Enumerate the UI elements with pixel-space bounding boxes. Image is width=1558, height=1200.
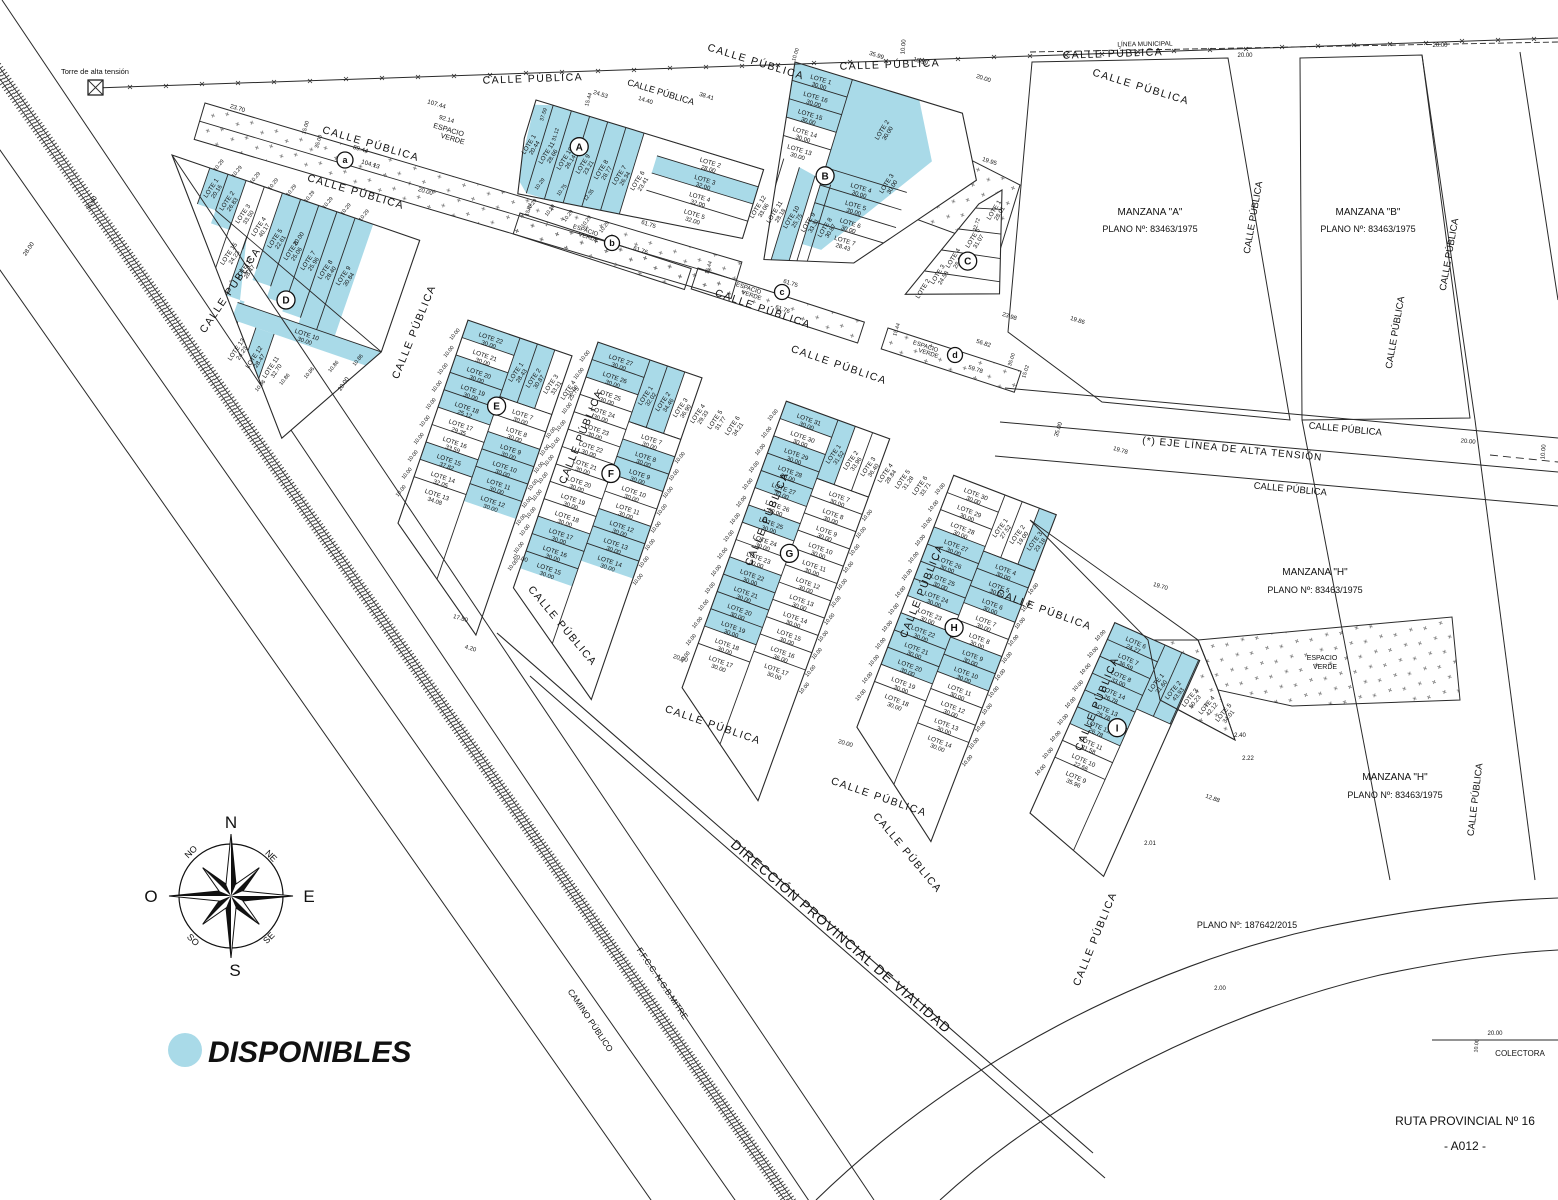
svg-text:N: N [225, 813, 237, 832]
svg-text:PLANO Nº: 187642/2015: PLANO Nº: 187642/2015 [1197, 920, 1297, 930]
svg-text:PLANO Nº: 83463/1975: PLANO Nº: 83463/1975 [1347, 790, 1442, 800]
svg-text:I: I [1116, 723, 1119, 734]
svg-text:d: d [952, 350, 958, 360]
svg-text:E: E [493, 402, 500, 413]
svg-text:2.00: 2.00 [1214, 986, 1226, 992]
svg-text:2.01: 2.01 [1144, 841, 1156, 847]
svg-text:- A012 -: - A012 - [1444, 1139, 1486, 1153]
svg-text:C: C [964, 257, 971, 268]
svg-text:G: G [786, 549, 794, 560]
svg-text:b: b [609, 238, 615, 248]
svg-text:ESPACIO: ESPACIO [1307, 655, 1338, 662]
svg-text:20.00: 20.00 [1432, 43, 1448, 49]
svg-text:D: D [282, 296, 289, 307]
svg-text:10.00: 10.00 [1473, 1039, 1480, 1053]
svg-text:H: H [950, 623, 957, 634]
svg-text:O: O [144, 887, 157, 906]
svg-text:Torre de alta tensión: Torre de alta tensión [61, 67, 129, 76]
svg-text:2.40: 2.40 [1234, 733, 1246, 739]
svg-text:PLANO Nº: 83463/1975: PLANO Nº: 83463/1975 [1102, 224, 1197, 234]
svg-text:c: c [779, 287, 784, 297]
svg-text:20.00: 20.00 [1487, 1031, 1503, 1037]
svg-text:B: B [821, 171, 828, 182]
svg-text:MANZANA "B": MANZANA "B" [1336, 207, 1401, 218]
svg-text:PLANO Nº: 83463/1975: PLANO Nº: 83463/1975 [1267, 585, 1362, 595]
svg-text:VERDE: VERDE [1313, 664, 1337, 671]
svg-text:PLANO Nº: 83463/1975: PLANO Nº: 83463/1975 [1320, 224, 1415, 234]
svg-text:MANZANA "H": MANZANA "H" [1282, 567, 1348, 578]
svg-text:S: S [229, 961, 240, 980]
svg-text:MANZANA "H": MANZANA "H" [1362, 772, 1428, 783]
svg-text:F: F [608, 469, 614, 480]
svg-text:20.00: 20.00 [1237, 53, 1253, 59]
svg-text:COLECTORA: COLECTORA [1495, 1049, 1545, 1058]
svg-text:2.22: 2.22 [1242, 756, 1254, 762]
svg-text:DISPONIBLES: DISPONIBLES [208, 1036, 411, 1069]
svg-text:MANZANA "A": MANZANA "A" [1118, 207, 1183, 218]
svg-text:RUTA PROVINCIAL Nº 16: RUTA PROVINCIAL Nº 16 [1395, 1114, 1535, 1128]
svg-text:E: E [303, 887, 314, 906]
svg-text:A: A [576, 142, 583, 153]
